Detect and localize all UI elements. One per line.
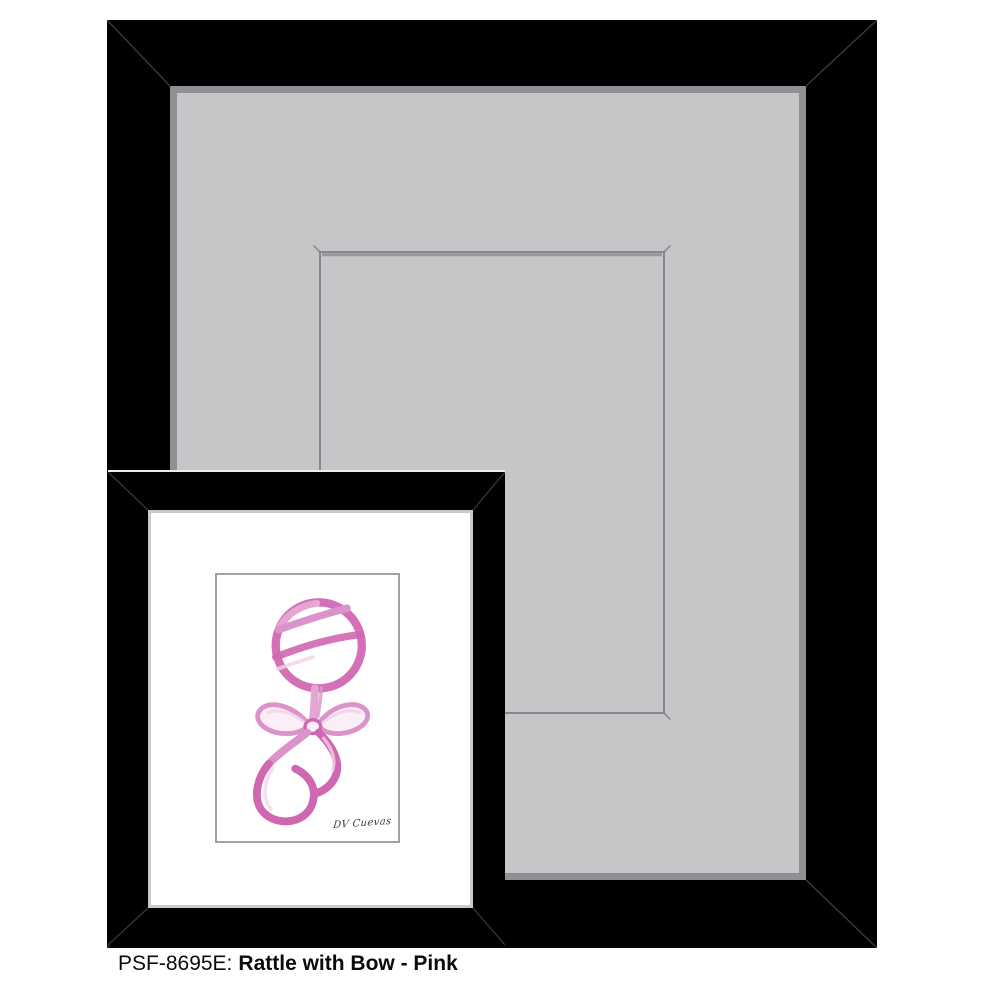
rattle-with-bow-illustration [217, 575, 398, 841]
small-frame-mat: DV Cuevas [148, 510, 473, 908]
product-sku: PSF-8695E: [118, 952, 232, 975]
product-title: Rattle with Bow - Pink [238, 952, 457, 975]
small-frame: DV Cuevas [108, 472, 505, 945]
product-image-stage: DV Cuevas PSF-8695E:Rattle with Bow - Pi… [0, 0, 984, 984]
product-caption: PSF-8695E:Rattle with Bow - Pink [118, 951, 458, 976]
artwork-print: DV Cuevas [215, 573, 400, 843]
